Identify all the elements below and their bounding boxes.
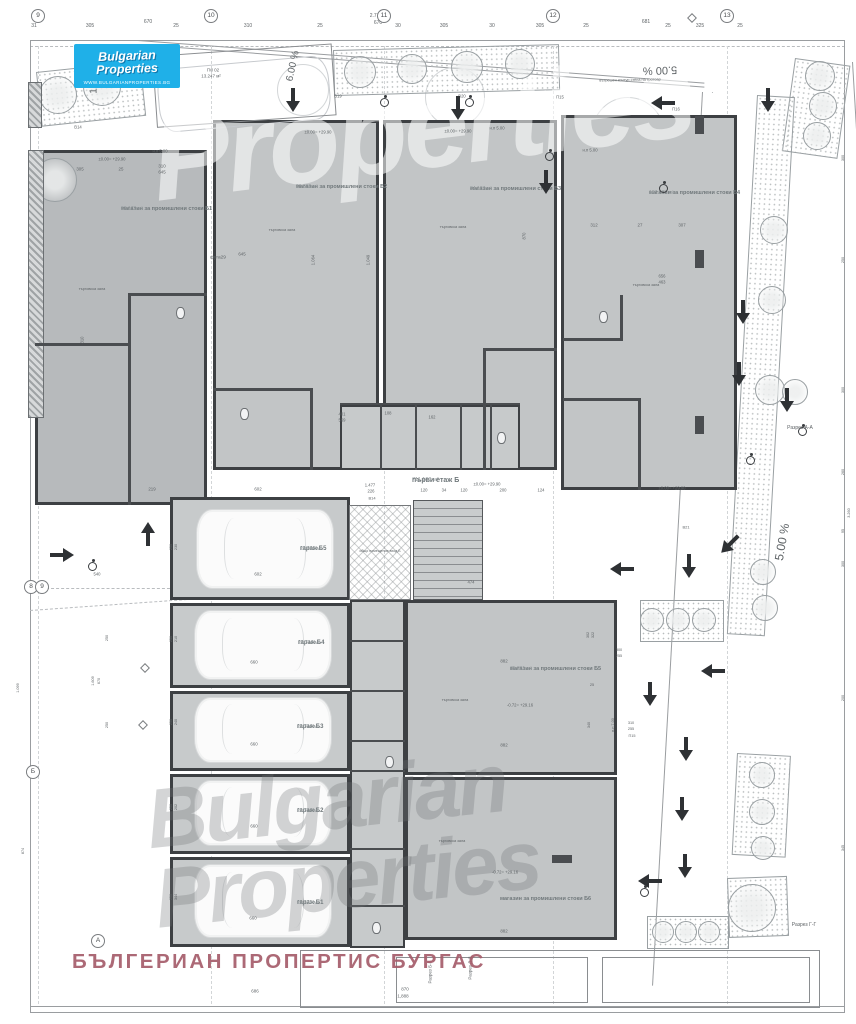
- tree: [505, 49, 535, 79]
- dimension-annotation: 30: [395, 23, 401, 29]
- column-pier: [695, 116, 704, 134]
- arrow-shaft: [291, 88, 295, 102]
- arrow-shaft: [648, 682, 652, 696]
- direction-arrow: [636, 874, 662, 888]
- tree: [652, 921, 674, 943]
- dimension-annotation: 681: [642, 19, 650, 25]
- dimension-annotation: 474: [468, 580, 475, 585]
- wheelchair-access-icon: [798, 427, 807, 436]
- direction-arrow: [699, 664, 725, 678]
- tree: [39, 76, 77, 114]
- dimension-annotation: търговска зала: [79, 287, 106, 291]
- dimension-annotation: 310: [158, 164, 165, 169]
- partition-wall: [350, 848, 405, 850]
- dimension-annotation: 540: [94, 572, 101, 577]
- dimension-annotation: 25: [665, 23, 671, 29]
- wheelchair-access-icon: [380, 98, 389, 107]
- dimension-annotation: 660: [250, 824, 257, 829]
- dimension-annotation: 250: [169, 719, 173, 725]
- toilet-fixture: [385, 756, 394, 768]
- direction-arrow: [50, 548, 76, 562]
- dimension-annotation: 1.609: [91, 676, 95, 686]
- dimension-annotation: 325: [696, 23, 704, 29]
- tree: [758, 286, 786, 314]
- dimension-annotation: 300: [841, 155, 845, 161]
- wheelchair-access-icon: [640, 888, 649, 897]
- dimension-annotation: 300: [841, 387, 845, 393]
- tree: [344, 56, 376, 88]
- dimension-annotation: 250: [169, 804, 173, 810]
- dimension-annotation: 305: [536, 23, 544, 29]
- direction-arrow: [736, 300, 750, 326]
- dimension-annotation: търговска зала: [442, 698, 469, 702]
- dimension-annotation: 5.00 %: [772, 522, 792, 561]
- grid-column-marker: 11: [377, 9, 391, 23]
- partition-wall: [350, 640, 405, 642]
- dimension-annotation: 882: [500, 743, 507, 748]
- diamond-marker: [687, 13, 697, 23]
- dimension-annotation: 95: [841, 529, 845, 533]
- dimension-annotation: 670: [144, 19, 152, 25]
- hatched-wall-pier: [28, 82, 42, 128]
- dimension-annotation: 108: [385, 411, 392, 416]
- dimension-annotation: 345: [841, 845, 845, 851]
- dimension-annotation: 660: [250, 742, 257, 747]
- dimension-annotation: 645: [158, 170, 165, 175]
- below-grade-outline: [602, 957, 810, 1003]
- grid-row-marker: Б: [26, 765, 40, 779]
- partition-wall: [350, 905, 405, 907]
- tree: [397, 54, 427, 84]
- arrow-shaft: [544, 170, 548, 184]
- tree: [451, 51, 483, 83]
- ruler-line: [852, 62, 856, 1010]
- wheelchair-access-icon: [746, 456, 755, 465]
- partition-wall: [350, 690, 405, 692]
- toilet-fixture: [240, 408, 249, 420]
- dimension-annotation: -0.72= +29.16: [507, 703, 533, 708]
- dimension-annotation: н.п 5.00: [489, 126, 504, 131]
- column-pier: [695, 416, 704, 434]
- arrow-head: [286, 101, 300, 112]
- dimension-annotation: ГМ 02: [207, 68, 219, 73]
- direction-arrow: [451, 96, 465, 122]
- grid-column-marker: 9: [31, 9, 45, 23]
- tree: [809, 92, 837, 120]
- dimension-annotation: П15: [556, 95, 564, 100]
- dimension-annotation: 882: [500, 659, 507, 664]
- shop-name-label: магазин за промишлени стоки Б6: [500, 896, 591, 902]
- dimension-annotation: 30: [489, 23, 495, 29]
- dimension-annotation: ±0.00= +29.90: [445, 129, 472, 134]
- partition-wall: [340, 403, 520, 405]
- ruler-line: [844, 40, 845, 1012]
- dimension-annotation: 250: [169, 544, 173, 550]
- dimension-annotation: н.п 5.00: [582, 148, 597, 153]
- arrow-head: [643, 695, 657, 706]
- toilet-fixture: [497, 432, 506, 444]
- dimension-annotation: 250: [169, 894, 173, 900]
- grid-row-marker: 9: [35, 580, 49, 594]
- garage-area-label: 23.714 м²: [297, 724, 319, 730]
- dimension-annotation: търговска зала: [440, 225, 467, 229]
- dimension-annotation: 210: [174, 636, 178, 642]
- arrow-shaft: [785, 388, 789, 402]
- toilet-fixture: [599, 311, 608, 323]
- dimension-annotation: 401: [339, 412, 346, 417]
- shop-area-label: 75.231 м²: [510, 666, 532, 672]
- dimension-annotation: 602: [254, 487, 261, 492]
- direction-arrow: [761, 88, 775, 114]
- dimension-annotation: 162: [429, 415, 436, 420]
- dimension-annotation: 250: [105, 635, 109, 641]
- dimension-annotation: 310: [244, 23, 252, 29]
- dimension-annotation: 312: [590, 223, 597, 228]
- garage-area-label: 23.714 м²: [298, 640, 320, 646]
- dimension-annotation: 874: [21, 848, 25, 854]
- footer-brand-text: БЪЛГЕРИАН ПРОПЕРТИС БУРГАС: [72, 950, 486, 974]
- dimension-annotation: 300: [841, 561, 845, 567]
- dimension-annotation: ±0.00= +29.90: [305, 130, 332, 135]
- arrow-shaft: [50, 553, 64, 557]
- dimension-annotation: търговска зала: [633, 283, 660, 287]
- partition-wall: [483, 348, 486, 470]
- dimension-annotation: 13.247 м²: [201, 74, 221, 79]
- floorplan-canvas: Bulgarian Properties WWW.BULGARIANPROPER…: [0, 0, 856, 1024]
- dimension-annotation: търговска зала: [269, 228, 296, 232]
- dimension-annotation: 305: [76, 167, 83, 172]
- dimension-annotation: 25: [173, 23, 179, 29]
- direction-arrow: [675, 797, 689, 823]
- dimension-annotation: 340: [587, 722, 591, 728]
- arrow-head: [682, 567, 696, 578]
- direction-arrow: [679, 737, 693, 763]
- direction-arrow: [286, 88, 300, 114]
- arrow-shaft: [680, 797, 684, 811]
- shop-area-label: 93.173 м²: [121, 206, 143, 212]
- dimension-annotation: 25: [583, 23, 589, 29]
- dimension-annotation: 31: [31, 23, 37, 29]
- partition-wall: [483, 348, 557, 351]
- dimension-annotation: н.п 7.00: [611, 718, 615, 732]
- tree: [751, 836, 775, 860]
- tree: [803, 122, 831, 150]
- tree: [760, 216, 788, 244]
- partition-wall: [128, 293, 207, 296]
- direction-arrow: [732, 362, 746, 388]
- ruler-line: [30, 1012, 845, 1013]
- dimension-annotation: общо помещение вход Б: [359, 549, 400, 553]
- partition-wall: [350, 770, 405, 772]
- dimension-annotation: 5.00 %: [643, 63, 678, 76]
- arrow-head: [701, 664, 712, 678]
- tree: [698, 921, 720, 943]
- arrow-head: [63, 548, 74, 562]
- dimension-annotation: ±0.00= +29.90: [659, 486, 686, 491]
- dimension-annotation: 302: [586, 632, 590, 638]
- arrow-head: [732, 375, 746, 386]
- arrow-shaft: [661, 101, 675, 105]
- dimension-annotation: 25: [317, 23, 323, 29]
- shop-room-1: [35, 150, 207, 505]
- dimension-annotation: 202: [174, 804, 178, 810]
- dimension-annotation: 660: [250, 660, 257, 665]
- shop-room-5: [405, 600, 617, 775]
- corridor: [350, 600, 405, 948]
- dimension-annotation: 645: [238, 252, 245, 257]
- shop-room-6: [405, 777, 617, 940]
- arrow-shaft: [741, 300, 745, 314]
- direction-arrow: [643, 682, 657, 708]
- dimension-annotation: 870: [401, 987, 409, 992]
- dimension-annotation: 226: [368, 489, 375, 494]
- arrow-shaft: [684, 737, 688, 751]
- direction-arrow: [780, 388, 794, 414]
- arrow-shaft: [620, 567, 634, 571]
- dimension-annotation: 300: [616, 648, 622, 652]
- toilet-fixture: [372, 922, 381, 934]
- floor-area-label: 711.100 м²: [412, 477, 439, 483]
- arrow-head: [780, 401, 794, 412]
- arrow-shaft: [456, 96, 460, 110]
- garage-area-label: 25.373 м²: [297, 900, 319, 906]
- dimension-annotation: В14: [368, 496, 375, 501]
- tree: [640, 608, 664, 632]
- arrow-head: [539, 183, 553, 194]
- dimension-annotation: 670: [97, 678, 101, 684]
- arrow-shaft: [711, 669, 725, 673]
- tree: [749, 762, 775, 788]
- dimension-annotation: 310: [80, 337, 85, 344]
- shop-area-label: 84.107 м²: [470, 186, 492, 192]
- partition-wall: [213, 388, 312, 391]
- dimension-annotation: 120: [461, 488, 468, 493]
- dimension-annotation: -0.72= +29.16: [492, 870, 518, 875]
- dimension-annotation: В19: [334, 94, 341, 99]
- dimension-annotation: н.п 5.00: [152, 149, 167, 154]
- car-silhouette: [194, 697, 332, 763]
- dimension-annotation: В21: [682, 525, 689, 530]
- arrow-shaft: [737, 362, 741, 376]
- dimension-annotation: 27: [638, 223, 643, 228]
- grid-column-marker: 10: [204, 9, 218, 23]
- tree: [750, 559, 776, 585]
- dimension-annotation: 200: [500, 488, 507, 493]
- arrow-head: [678, 867, 692, 878]
- dimension-annotation: 240: [174, 719, 178, 725]
- toilet-fixture: [176, 307, 185, 319]
- tree: [675, 921, 697, 943]
- dimension-annotation: 255: [616, 654, 622, 658]
- direction-arrow: [141, 520, 155, 546]
- dimension-annotation: 307: [678, 223, 685, 228]
- dimension-annotation: 656: [659, 274, 666, 279]
- dimension-annotation: 25: [590, 683, 594, 687]
- dimension-annotation: 870: [522, 233, 527, 240]
- arrow-head: [679, 750, 693, 761]
- dimension-annotation: 344: [174, 894, 178, 900]
- dimension-annotation: 250: [841, 257, 845, 263]
- tree: [666, 608, 690, 632]
- arrow-head: [610, 562, 621, 576]
- hatched-wall-pier: [28, 150, 44, 418]
- dimension-annotation: В14: [74, 125, 81, 130]
- dimension-annotation: 25: [119, 167, 124, 172]
- direction-arrow: [678, 854, 692, 880]
- wheelchair-access-icon: [659, 184, 668, 193]
- arrow-head: [451, 109, 465, 120]
- arrow-head: [761, 101, 775, 112]
- partition-wall: [350, 740, 405, 742]
- dimension-annotation: 25: [737, 23, 743, 29]
- direction-arrow: [539, 170, 553, 196]
- column-pier: [552, 855, 572, 863]
- direction-arrow: [608, 562, 634, 576]
- partition-wall: [563, 338, 623, 341]
- column-pier: [695, 250, 704, 268]
- arrow-head: [736, 313, 750, 324]
- arrow-shaft: [687, 554, 691, 568]
- wheelchair-access-icon: [545, 152, 554, 161]
- wheelchair-access-icon: [88, 562, 97, 571]
- dimension-annotation: 34: [442, 488, 447, 493]
- dimension-annotation: 686: [251, 989, 259, 994]
- garage-area-label: 23.714 м²: [297, 808, 319, 814]
- dimension-annotation: П15: [629, 734, 636, 738]
- logo-url: WWW.BULGARIANPROPERTIES.BG: [74, 80, 180, 85]
- direction-arrow: [682, 554, 696, 580]
- dimension-annotation: 120: [421, 488, 428, 493]
- dimension-annotation: 219: [148, 487, 155, 492]
- dimension-annotation: търговска зала: [439, 839, 466, 843]
- tree: [805, 61, 835, 91]
- dimension-annotation: 305: [86, 23, 94, 29]
- arrow-shaft: [648, 879, 662, 883]
- dimension-annotation: ±0.00= +29.90: [474, 482, 501, 487]
- dimension-annotation: 250: [105, 722, 109, 728]
- staircase: [413, 500, 483, 600]
- diamond-marker: [138, 720, 148, 730]
- dimension-annotation: ±0.00= +29.90: [99, 157, 126, 162]
- partition-wall: [638, 398, 641, 490]
- dimension-annotation: 1.099: [16, 683, 20, 693]
- dimension-annotation: 200: [841, 695, 845, 701]
- partition-wall: [490, 403, 492, 470]
- grid-column-marker: 12: [546, 9, 560, 23]
- dimension-annotation: 569: [339, 418, 346, 423]
- dimension-annotation: 1.049: [366, 255, 371, 265]
- wheelchair-access-icon: [465, 98, 474, 107]
- partition-wall: [620, 295, 623, 340]
- partition-wall: [460, 403, 462, 470]
- partition-wall: [563, 398, 640, 401]
- dimension-annotation: 124: [538, 488, 545, 493]
- arrow-head: [141, 522, 155, 533]
- garage-area-label: 23.060 м²: [300, 546, 322, 552]
- arrow-shaft: [766, 88, 770, 102]
- dimension-annotation: 1.477: [365, 483, 375, 488]
- grid-row-marker: А: [91, 934, 105, 948]
- partition-wall: [128, 295, 131, 505]
- logo-line2: Properties: [74, 61, 180, 78]
- dimension-annotation: 255: [628, 727, 634, 731]
- partition-wall: [310, 388, 313, 470]
- shop-area-label: 91.630 м²: [296, 184, 318, 190]
- tree: [728, 884, 776, 932]
- dimension-annotation: Разрез Г-Г: [792, 922, 816, 928]
- arrow-shaft: [683, 854, 687, 868]
- partition-wall: [415, 403, 417, 470]
- arrow-head: [651, 96, 662, 110]
- tree: [692, 608, 716, 632]
- bulgarian-properties-logo: Bulgarian Properties WWW.BULGARIANPROPER…: [74, 44, 180, 88]
- tree: [752, 595, 778, 621]
- arrow-head: [675, 810, 689, 821]
- arrow-shaft: [146, 532, 150, 546]
- shop-room-4: [561, 115, 737, 490]
- dimension-annotation: 882: [500, 929, 507, 934]
- diamond-marker: [140, 663, 150, 673]
- direction-arrow: [649, 96, 675, 110]
- dimension-annotation: 1,888: [397, 994, 408, 999]
- dimension-annotation: 305: [440, 23, 448, 29]
- dimension-annotation: 602: [254, 572, 261, 577]
- dimension-annotation: 250: [169, 636, 173, 642]
- dimension-annotation: 322: [591, 632, 595, 638]
- dimension-annotation: 310: [628, 721, 634, 725]
- dimension-annotation: 260: [841, 469, 845, 475]
- dimension-annotation: фуга29: [210, 256, 226, 261]
- grid-column-marker: 13: [720, 9, 734, 23]
- dimension-annotation: 660: [249, 916, 256, 921]
- dimension-annotation: 1.064: [311, 255, 316, 265]
- tree: [749, 799, 775, 825]
- dimension-annotation: 3.260: [847, 508, 851, 518]
- partition-wall: [380, 403, 382, 470]
- dimension-annotation: 230: [174, 544, 178, 550]
